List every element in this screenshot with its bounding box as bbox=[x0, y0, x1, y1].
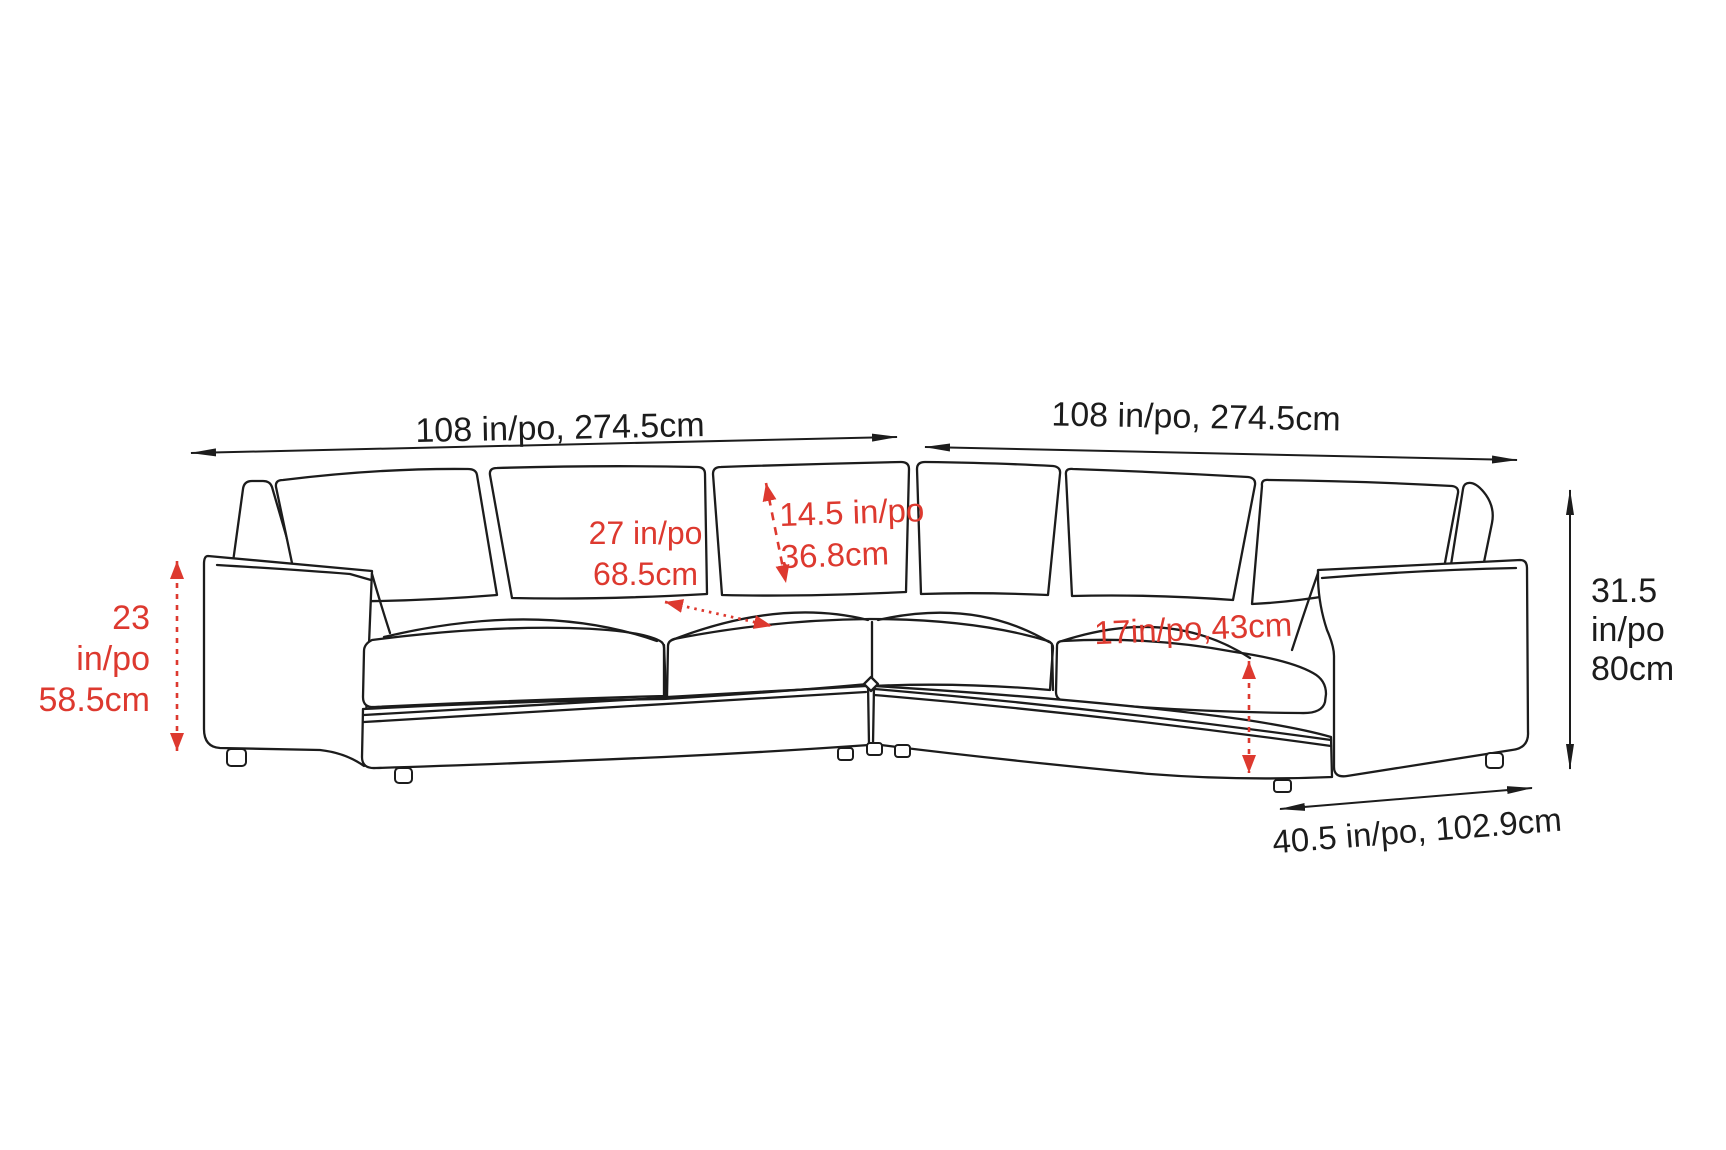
leg bbox=[867, 743, 882, 755]
sofa-dimension-diagram: 108 in/po, 274.5cm 108 in/po, 274.5cm 23… bbox=[0, 0, 1726, 1150]
leg bbox=[227, 749, 246, 766]
label-seat-depth: 27 in/po 68.5cm bbox=[543, 513, 748, 595]
label-line: 80cm bbox=[1591, 650, 1711, 689]
leg bbox=[895, 745, 910, 757]
label-back-height: 23 in/po 58.5cm bbox=[28, 598, 150, 721]
leg bbox=[1486, 753, 1503, 768]
label-line: 23 bbox=[28, 598, 150, 639]
right-arm bbox=[1318, 560, 1528, 776]
label-line: 68.5cm bbox=[543, 554, 748, 595]
label-width-left: 108 in/po, 274.5cm bbox=[405, 405, 716, 452]
label-line: 31.5 bbox=[1591, 572, 1711, 611]
seat-cushion-left bbox=[363, 628, 664, 707]
label-width-right: 108 in/po, 274.5cm bbox=[1046, 394, 1347, 440]
leg bbox=[1274, 780, 1291, 792]
arrow-width-right bbox=[925, 447, 1517, 460]
leg bbox=[838, 748, 853, 760]
label-back-cushion-height: 14.5 in/po 36.8cm bbox=[779, 488, 962, 578]
label-line: 58.5cm bbox=[28, 680, 150, 721]
label-line: 36.8cm bbox=[780, 530, 961, 578]
leg bbox=[395, 768, 412, 783]
back-cushion-3 bbox=[1066, 469, 1255, 600]
label-line: in/po bbox=[28, 639, 150, 680]
label-seat-height: 17in/po,43cm bbox=[1093, 604, 1293, 654]
label-overall-height: 31.5 in/po 80cm bbox=[1591, 572, 1711, 689]
label-line: 14.5 in/po bbox=[779, 488, 960, 536]
label-line: 27 in/po bbox=[543, 513, 748, 554]
label-line: in/po bbox=[1591, 611, 1711, 650]
left-arm bbox=[204, 556, 372, 766]
arrow-seat-depth bbox=[665, 602, 772, 626]
